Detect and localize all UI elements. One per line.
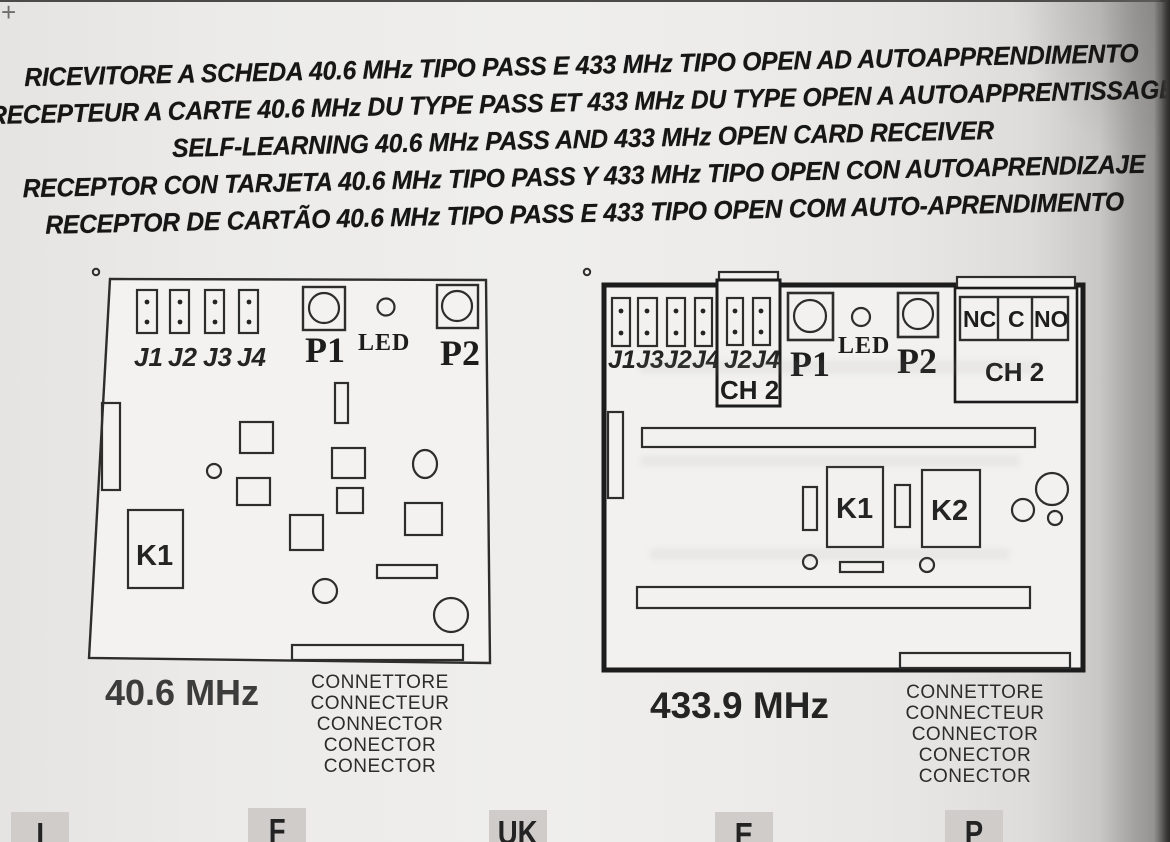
connector-label-es: CONECTOR	[324, 735, 436, 756]
showthrough-smudge	[650, 548, 1010, 560]
jumper-pin-icon	[645, 331, 650, 336]
led-label: LED	[838, 333, 890, 359]
connector-label-en: CONNECTOR	[317, 714, 444, 735]
language-tab-label: F	[269, 813, 286, 842]
terminal-c-label: C	[1008, 306, 1025, 332]
jumper-pin-icon	[733, 330, 738, 335]
jumper-pin-icon	[759, 330, 764, 335]
frequency-label-40mhz: 40.6 MHz	[105, 672, 259, 714]
language-tab-italian: I	[11, 812, 69, 842]
language-tab-label: P	[965, 815, 983, 842]
language-tab-uk: UK	[489, 810, 547, 842]
jumper-pin-icon	[619, 331, 624, 336]
jumper-pin-icon	[645, 309, 650, 314]
connector-label-es: CONECTOR	[919, 745, 1031, 766]
language-tab-label: E	[735, 817, 753, 842]
relay-k1-label: K1	[836, 493, 873, 525]
relay-k2-label: K2	[931, 495, 968, 527]
connector-label-it: CONNETTORE	[311, 672, 449, 693]
connector-caption-left: CONNETTORE CONNECTEUR CONNECTOR CONECTOR…	[290, 672, 470, 777]
language-tab-label: I	[36, 817, 44, 842]
showthrough-smudge	[640, 360, 1040, 374]
jumper-pin-icon	[619, 309, 624, 314]
jumper-pin-icon	[701, 331, 706, 336]
scanned-manual-page: + RICEVITORE A SCHEDA 40.6 MHz TIPO PASS…	[0, 0, 1170, 842]
language-tab-french: F	[248, 808, 306, 842]
connector-label-pt: CONECTOR	[324, 756, 436, 777]
jumper-pin-icon	[733, 309, 738, 314]
terminal-no-label: NO	[1034, 306, 1069, 332]
connector-label-pt: CONECTOR	[919, 766, 1031, 787]
jumper-pin-icon	[759, 309, 764, 314]
terminal-nc-label: NC	[963, 306, 996, 332]
ch2-box-label: CH 2	[720, 375, 779, 405]
jumper-pin-icon	[674, 309, 679, 314]
jumper-j1-label: J1	[608, 346, 636, 374]
connector-label-fr: CONNECTEUR	[905, 703, 1044, 724]
connector-label-it: CONNETTORE	[906, 682, 1044, 703]
connector-label-en: CONNECTOR	[912, 724, 1039, 745]
jumper-pin-icon	[674, 331, 679, 336]
mounting-dot-icon	[584, 269, 590, 275]
connector-caption-right: CONNETTORE CONNECTEUR CONNECTOR CONECTOR…	[885, 682, 1065, 787]
scan-right-edge	[1154, 0, 1170, 842]
connector-label-fr: CONNECTEUR	[310, 693, 449, 714]
language-tab-portuguese: P	[945, 810, 1003, 842]
showthrough-smudge	[640, 455, 1020, 467]
frequency-label-433mhz: 433.9 MHz	[650, 685, 829, 727]
jumper-pin-icon	[701, 309, 706, 314]
language-tab-spanish: E	[715, 812, 773, 842]
language-tab-label: UK	[498, 815, 538, 842]
